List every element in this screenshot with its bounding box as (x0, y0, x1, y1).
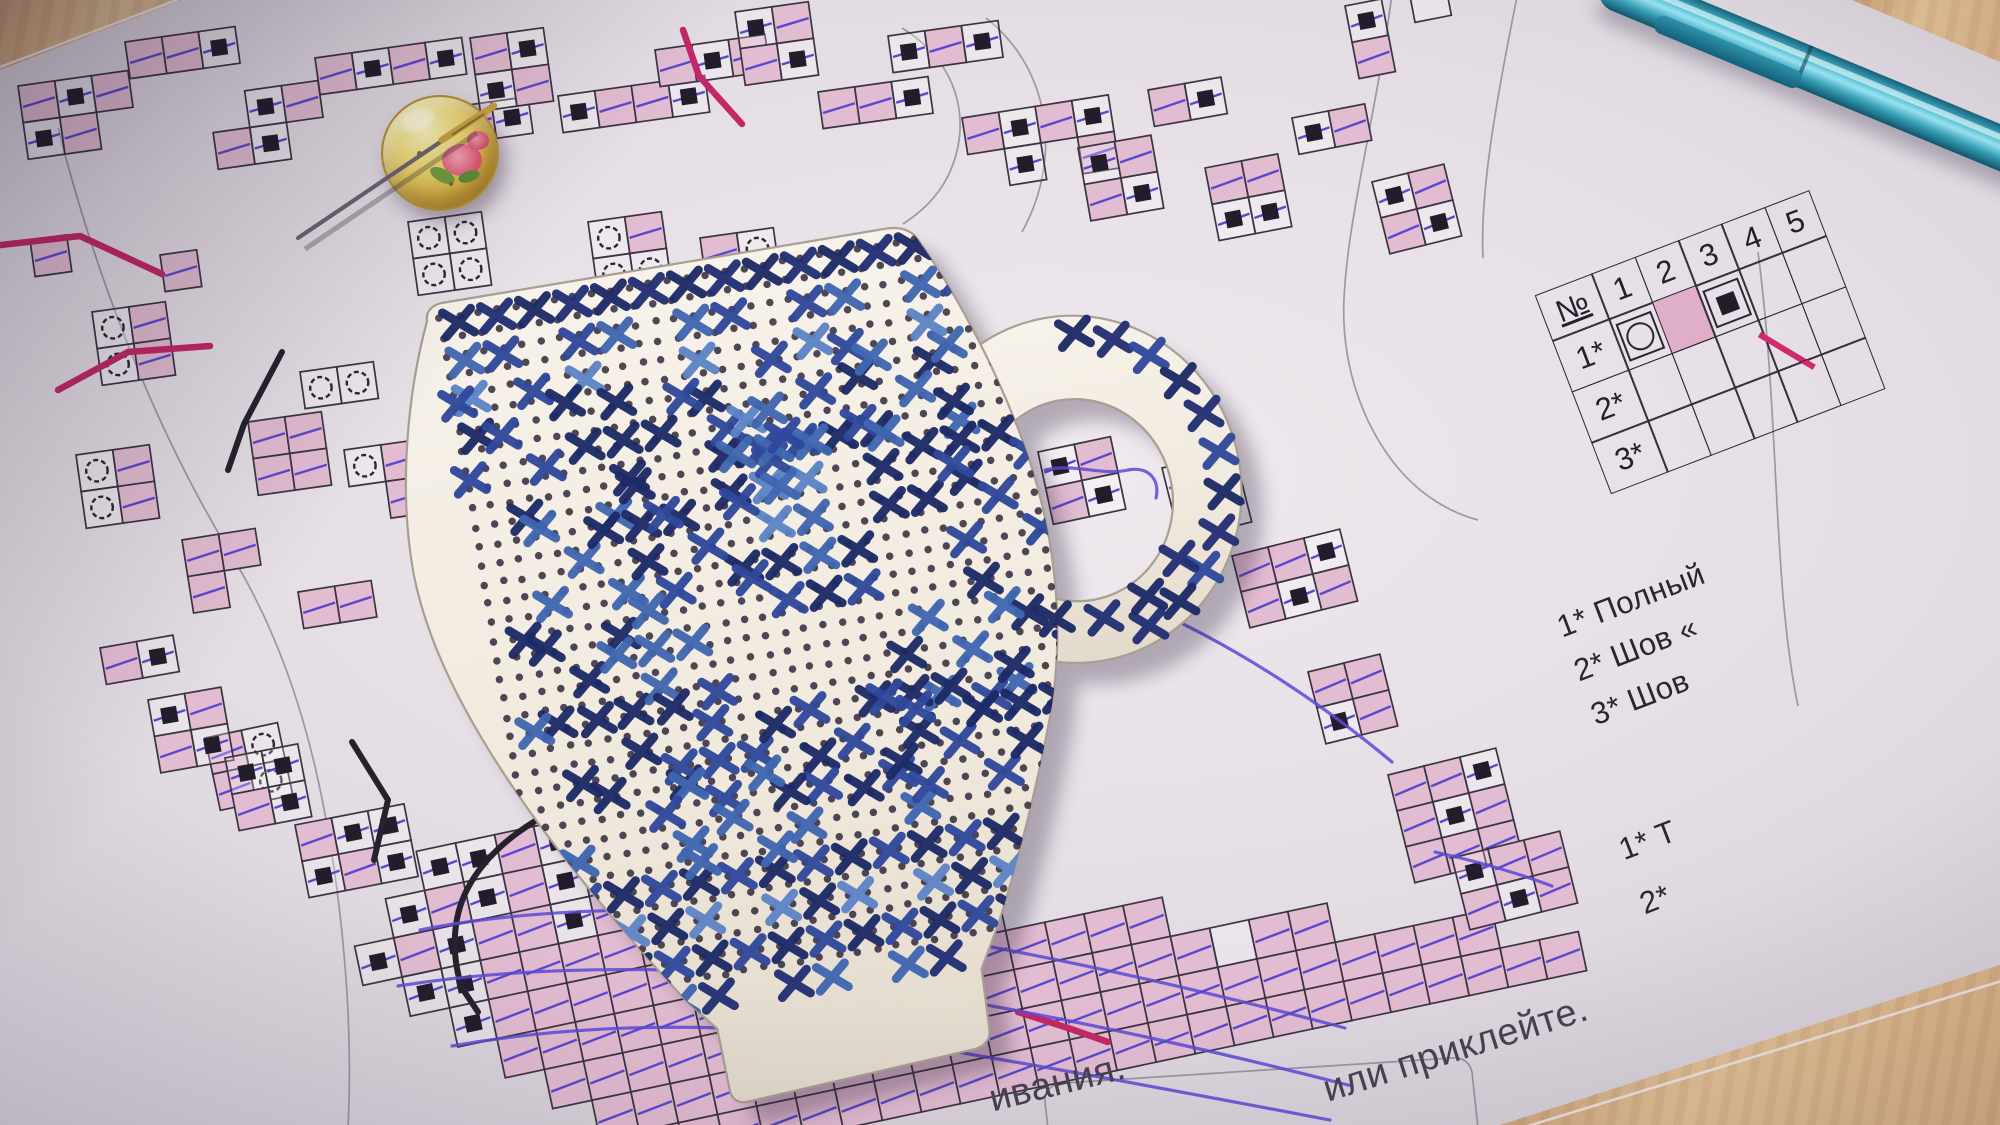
paper-edge-highlight (1528, 980, 2000, 1125)
photo-scene: №123451*2*3* 1* Полный2* Шов «3* Шов 1* … (0, 0, 2000, 1125)
needle-shadow (305, 133, 477, 249)
paper-edge-highlight (0, 0, 182, 67)
needle-eye (442, 106, 494, 140)
needle-eye-slot (452, 114, 484, 135)
decor-overlay (0, 0, 2000, 1125)
